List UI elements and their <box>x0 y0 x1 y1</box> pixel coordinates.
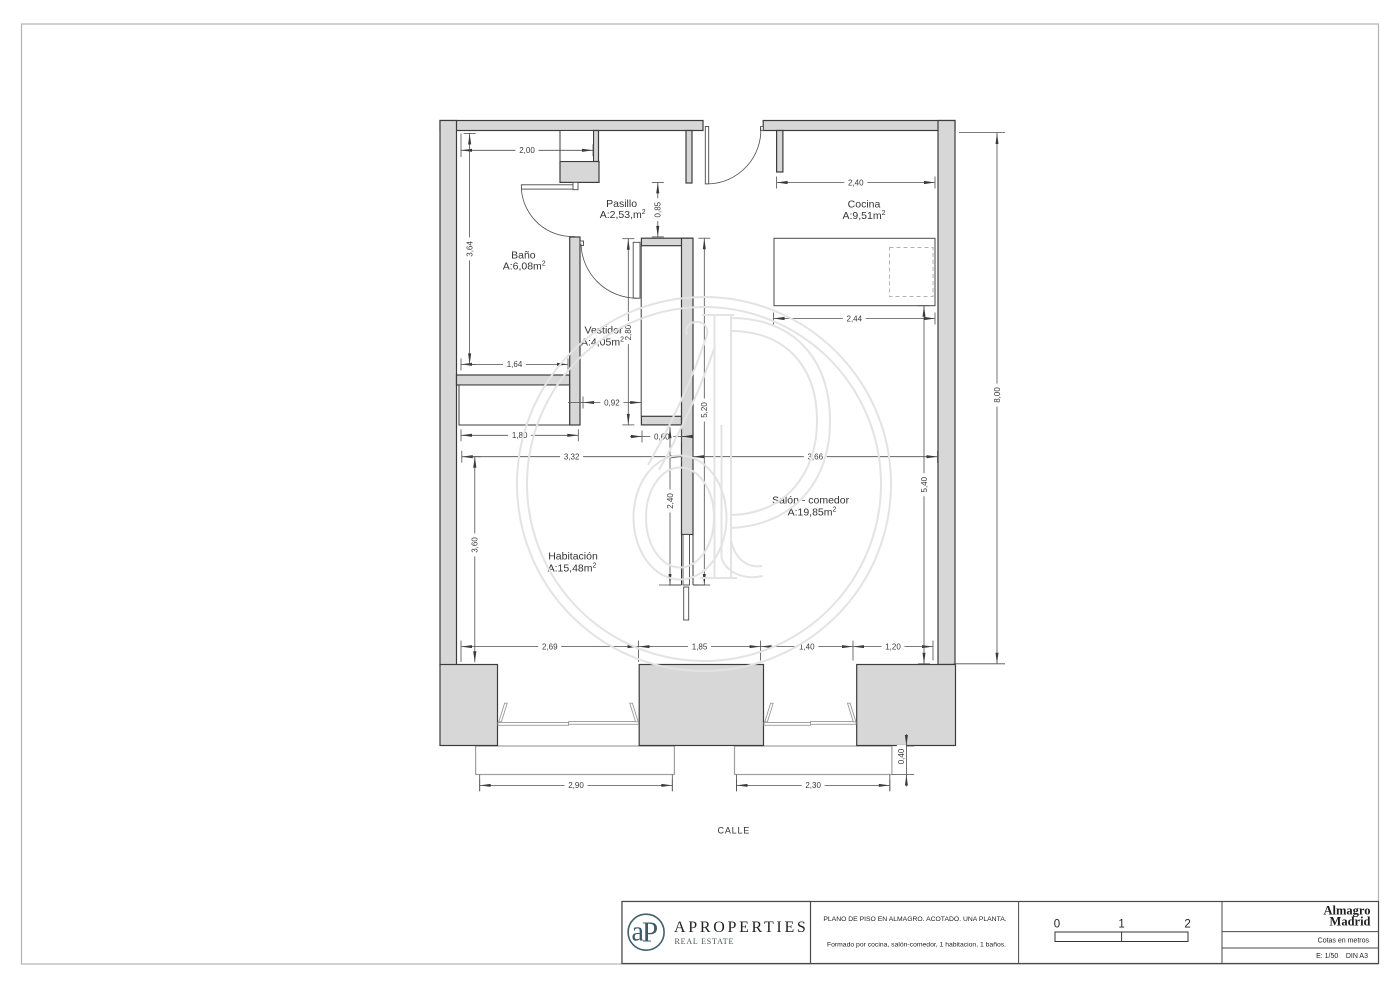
svg-text:1,20: 1,20 <box>885 642 901 651</box>
svg-text:2,40: 2,40 <box>848 178 864 187</box>
svg-text:A:9,51m2: A:9,51m2 <box>842 210 885 222</box>
svg-text:A:19,85m2: A:19,85m2 <box>788 506 837 518</box>
svg-text:1,64: 1,64 <box>507 360 523 369</box>
svg-text:Habitación: Habitación <box>548 551 598 563</box>
svg-text:5,40: 5,40 <box>920 476 929 492</box>
svg-text:2,90: 2,90 <box>568 781 584 790</box>
svg-text:P: P <box>642 917 658 949</box>
svg-text:A:6,08m2: A:6,08m2 <box>503 261 546 273</box>
svg-text:1,80: 1,80 <box>512 431 528 440</box>
svg-text:5,20: 5,20 <box>700 402 709 418</box>
svg-text:2,69: 2,69 <box>542 642 558 651</box>
svg-text:0: 0 <box>1054 919 1060 931</box>
svg-text:2: 2 <box>1184 919 1190 931</box>
svg-text:PLANO DE PISO EN ALMAGRO. ACOT: PLANO DE PISO EN ALMAGRO. ACOTADO. UNA P… <box>823 916 1006 923</box>
svg-text:E: 1/50: E: 1/50 <box>1316 953 1338 960</box>
svg-text:2,00: 2,00 <box>519 146 535 155</box>
svg-text:2,80: 2,80 <box>624 324 633 340</box>
svg-text:0,92: 0,92 <box>604 398 620 407</box>
svg-text:2,30: 2,30 <box>805 781 821 790</box>
svg-text:1,85: 1,85 <box>692 642 708 651</box>
svg-text:Formado por cocina, salón-come: Formado por cocina, salón-comedor, 1 hab… <box>827 942 1006 949</box>
svg-text:APROPERTIES: APROPERTIES <box>674 919 809 936</box>
svg-text:Cotas en metros: Cotas en metros <box>1318 938 1370 945</box>
svg-text:DIN A3: DIN A3 <box>1346 953 1368 960</box>
svg-text:A:2,53,m2: A:2,53,m2 <box>600 209 646 221</box>
svg-text:0,40: 0,40 <box>897 748 906 764</box>
svg-text:3,60: 3,60 <box>471 537 480 553</box>
svg-text:Madrid: Madrid <box>1330 914 1371 928</box>
svg-text:3,64: 3,64 <box>465 241 474 257</box>
svg-text:8,00: 8,00 <box>993 387 1002 403</box>
svg-text:0,85: 0,85 <box>654 201 663 217</box>
svg-text:Baño: Baño <box>511 250 536 262</box>
svg-text:3,32: 3,32 <box>564 453 580 462</box>
svg-text:CALLE: CALLE <box>718 826 751 836</box>
svg-text:Cocina: Cocina <box>848 199 881 211</box>
svg-text:1: 1 <box>1118 919 1124 931</box>
svg-text:2,40: 2,40 <box>666 493 675 509</box>
svg-text:A:15,48m2: A:15,48m2 <box>548 562 597 574</box>
svg-text:REAL ESTATE: REAL ESTATE <box>675 937 735 946</box>
svg-text:2,44: 2,44 <box>847 314 863 323</box>
